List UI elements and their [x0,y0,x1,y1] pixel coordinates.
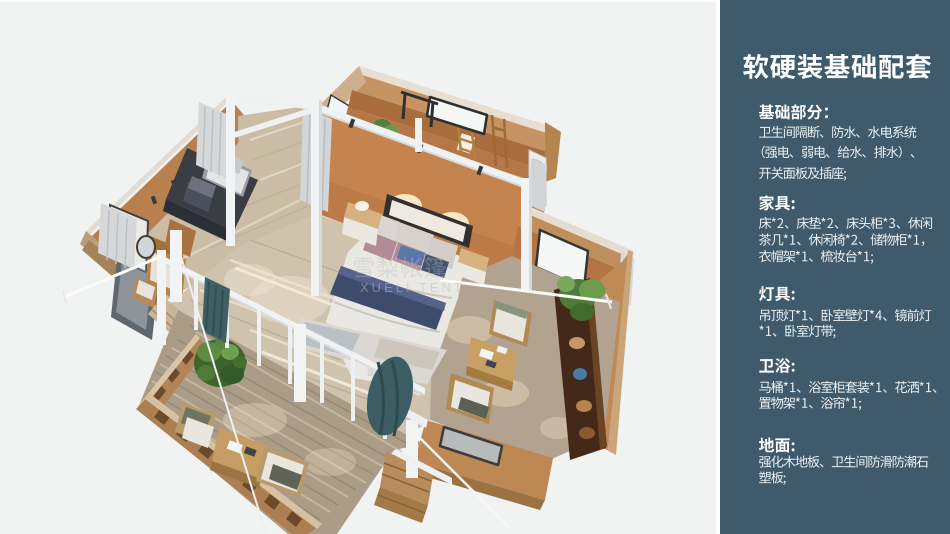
svg-text:XUELI TENT: XUELI TENT [360,280,465,295]
